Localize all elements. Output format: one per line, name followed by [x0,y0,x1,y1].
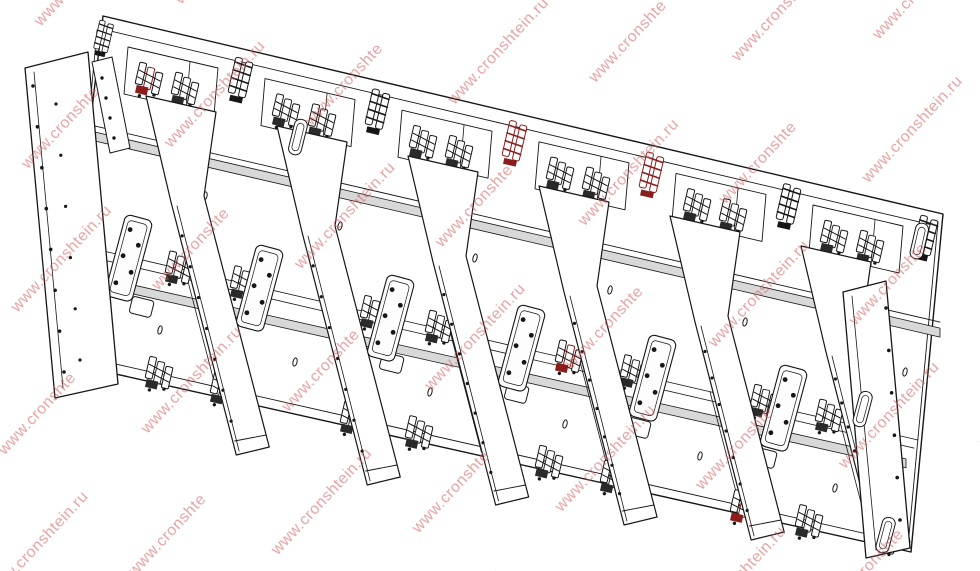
assembly-drawing: www.cronshtein.ru www.cronshtein.ru [0,0,980,571]
watermark-layer [0,0,980,571]
technical-drawing-page: www.cronshtein.ru www.cronshtein.ru [0,0,980,571]
